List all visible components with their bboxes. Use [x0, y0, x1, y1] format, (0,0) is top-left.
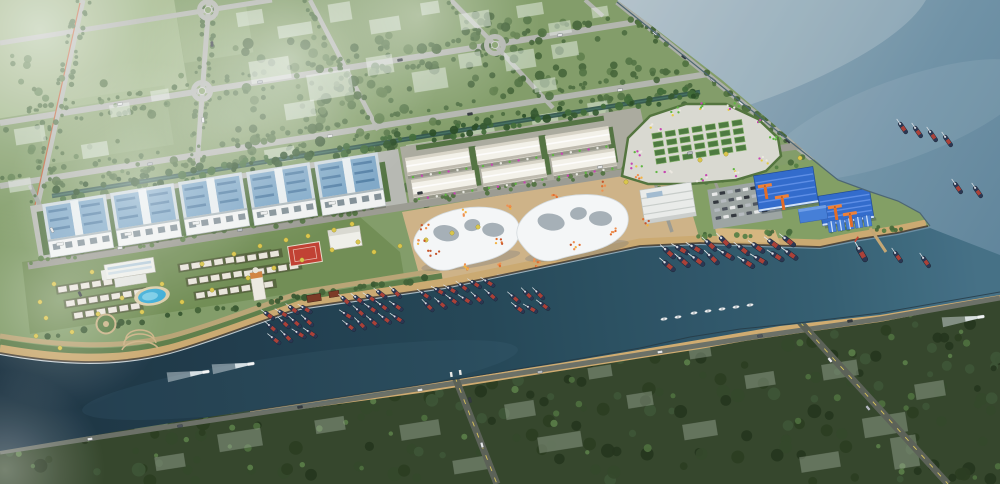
atmospheric-haze	[0, 0, 1000, 484]
aerial-rendering	[0, 0, 1000, 484]
scene-canvas	[0, 0, 1000, 484]
